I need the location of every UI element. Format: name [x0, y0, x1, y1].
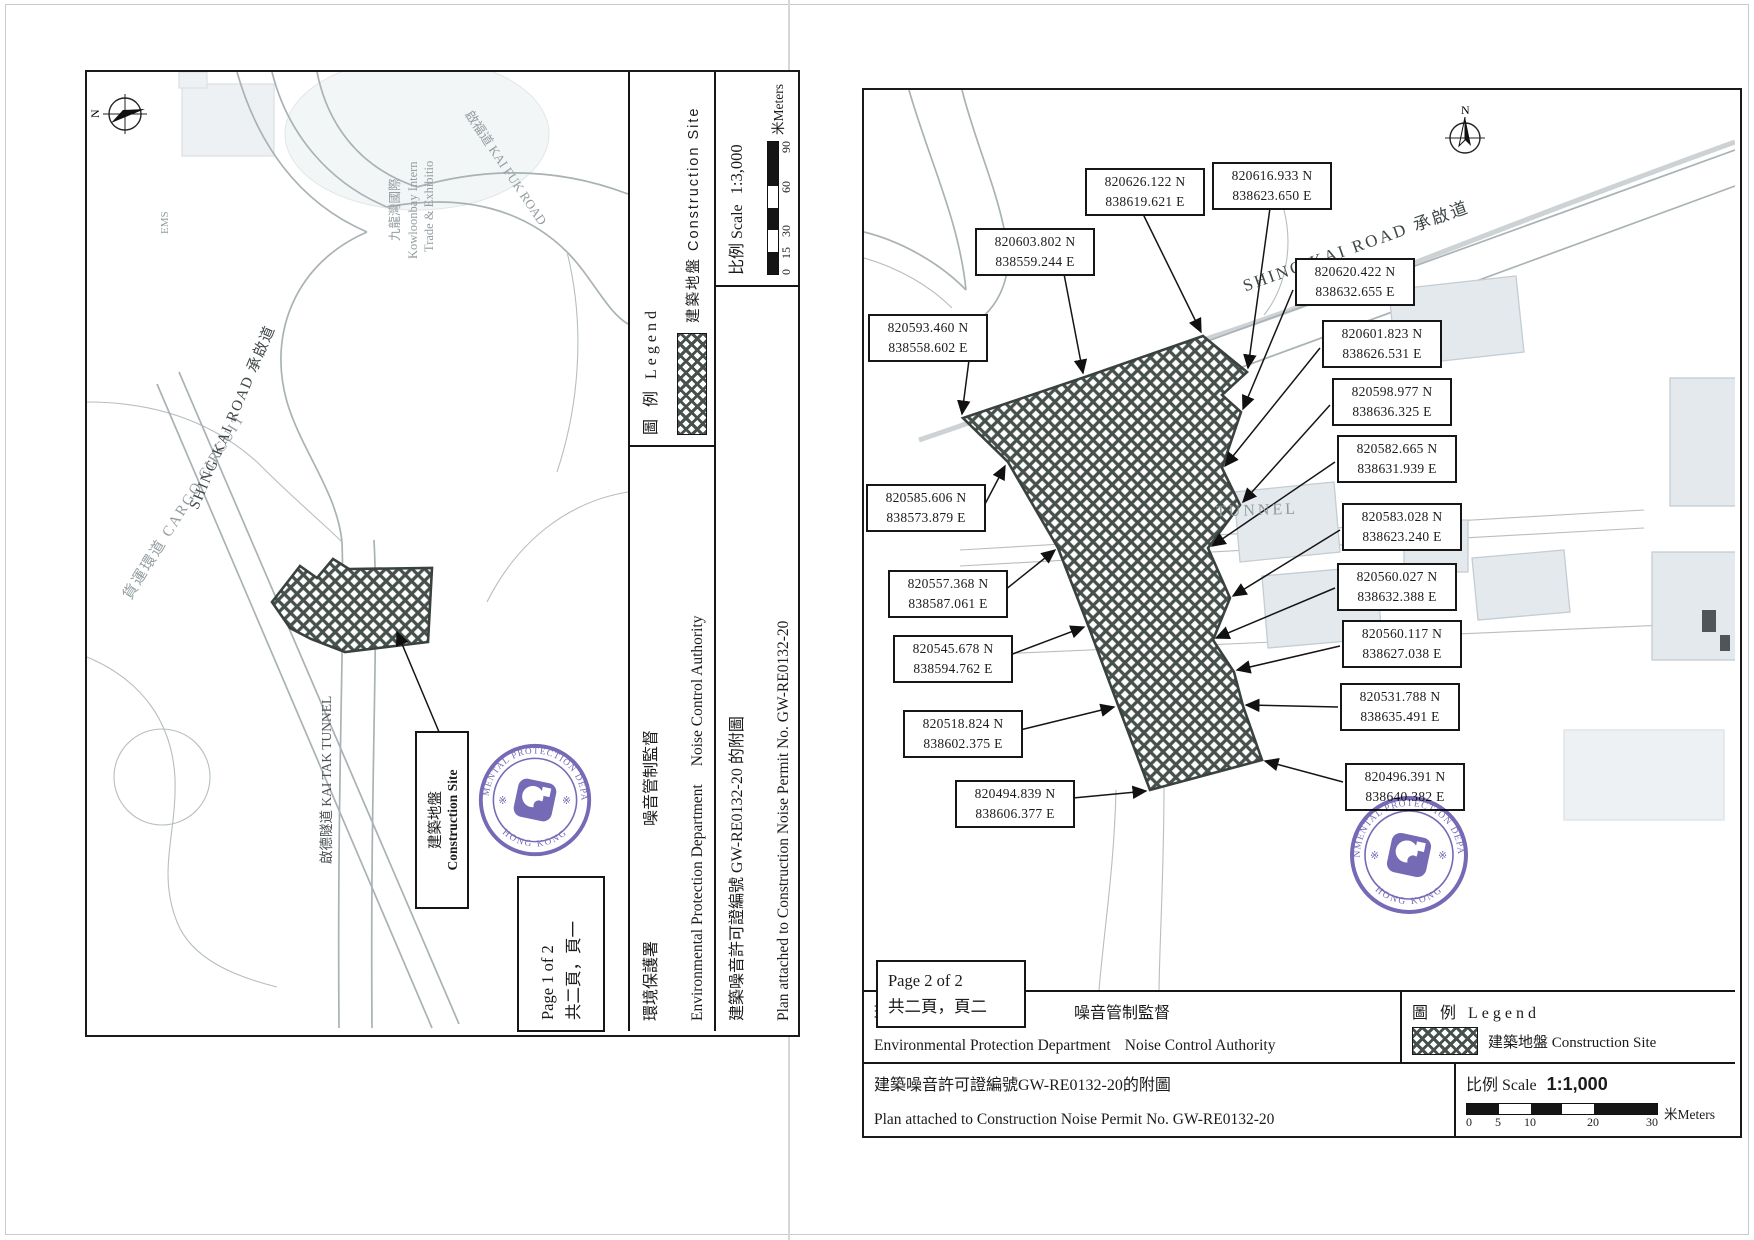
permit-plan-page-1: N EMS 貨運環道 CARGO CIRCUIT 啟福道 KAI FUK ROA… — [85, 70, 800, 1037]
coordinate-label: 820616.933 N838623.650 E — [1212, 162, 1332, 210]
scale-value: 1:3,000 — [727, 144, 747, 194]
stamp-star-left: ※ — [498, 796, 507, 807]
coordinate-label: 820531.788 N838635.491 E — [1340, 683, 1460, 731]
dept-zh: 環境保護署 — [643, 941, 660, 1021]
meters-label: 米Meters — [767, 84, 787, 135]
legend-hatch-swatch — [1412, 1027, 1478, 1055]
scale-bar-ticks: 0 5 10 20 30 — [1466, 1115, 1656, 1129]
page-number-zh: 共二頁，頁一 — [561, 878, 587, 1020]
page-number-zh: 共二頁，頁二 — [888, 994, 1024, 1020]
permit-line-en: Plan attached to Construction Noise Perm… — [874, 1111, 1444, 1129]
coordinate-label: 820545.678 N838594.762 E — [893, 635, 1013, 683]
permit-cell: 建築噪音許可證編號 GW-RE0132-20 的附圖 Plan attached… — [716, 287, 800, 1031]
legend-cell: 圖 例 Legend 建築地盤 Construction Site — [630, 72, 714, 447]
building — [179, 72, 207, 88]
legend-title: 圖 例 Legend — [637, 82, 661, 435]
kowloonbay-label-en1: Kowloonbay Intern — [406, 161, 421, 259]
coordinate-label: 820560.027 N838632.388 E — [1337, 563, 1457, 611]
coordinate-label: 820585.606 N838573.879 E — [866, 484, 986, 532]
permit-line-zh: 建築噪音許可證編號GW-RE0132-20的附圖 — [874, 1071, 1444, 1095]
scanned-permit-plans: N EMS 貨運環道 CARGO CIRCUIT 啟福道 KAI FUK ROA… — [0, 0, 1754, 1240]
scale-cell: 比例 Scale1:3,000 0 15 — [716, 72, 800, 287]
stamp-star-right: ※ — [1438, 850, 1447, 862]
permit-plan-page-2: N SHING KAI ROAD 承啟道 TUNNEL TS 820603.80… — [862, 88, 1742, 1138]
construction-site-arrow — [397, 632, 442, 739]
legend-title: 圖 例 Legend — [1412, 999, 1725, 1023]
construction-site-callout: 建築地盤 Construction Site — [415, 735, 465, 909]
epd-stamp: ENVIRONMENTAL PROTECTION DEPARTMENT HONG… — [1346, 792, 1472, 918]
permit-cell: 建築噪音許可證編號GW-RE0132-20的附圖 Plan attached t… — [864, 1064, 1454, 1136]
kowloonbay-label-zh: 九龍灣國際 — [384, 178, 403, 241]
scale-bar — [767, 141, 779, 275]
coordinate-label: 820582.665 N838631.939 E — [1337, 435, 1457, 483]
scale-bar — [1466, 1103, 1658, 1115]
authority-zh: 噪音管制監督 — [643, 730, 660, 826]
epd-stamp: ENVIRONMENTAL PROTECTION DEPARTMENT HONG… — [475, 740, 595, 860]
coordinate-label: 820560.117 N838627.038 E — [1342, 620, 1462, 668]
coordinate-label: 820626.122 N838619.621 E — [1085, 168, 1205, 216]
scale-label: 比例 Scale — [723, 204, 747, 275]
coordinate-label: 820557.368 N838587.061 E — [888, 570, 1008, 618]
ems-label: EMS — [159, 211, 171, 234]
svg-text:HONG KONG: HONG KONG — [1373, 885, 1445, 907]
stamp-star-right: ※ — [562, 796, 571, 807]
dept-en: Environmental Protection Department — [874, 1037, 1111, 1054]
coordinate-label: 820518.824 N838602.375 E — [903, 710, 1023, 758]
page1-title-block: 環境保護署噪音管制監督 Environmental Protection Dep… — [628, 72, 798, 1031]
scale-cell: 比例 Scale1:1,000 0 5 10 — [1454, 1064, 1735, 1136]
page-number-en: Page 2 of 2 — [888, 968, 1024, 994]
scale-bar-ticks: 0 15 30 60 90 — [779, 143, 793, 275]
building — [182, 84, 274, 156]
north-letter: N — [1461, 103, 1470, 117]
scale-value: 1:1,000 — [1547, 1074, 1608, 1095]
page-number-en: Page 1 of 2 — [535, 878, 561, 1020]
authority-en: Noise Control Authority — [689, 616, 706, 767]
page2-map: N — [864, 90, 1735, 990]
construction-site-polygon — [272, 559, 432, 652]
legend-cell: 圖 例 Legend 建築地盤 Construction Site — [1400, 992, 1735, 1062]
scale-label: 比例 Scale — [1466, 1071, 1537, 1095]
north-letter: N — [88, 109, 102, 118]
coordinate-label: 820598.977 N838636.325 E — [1332, 378, 1452, 426]
coordinate-label: 820601.823 N838626.531 E — [1322, 320, 1442, 368]
svg-text:HONG KONG: HONG KONG — [501, 827, 569, 849]
page-number-box: Page 1 of 2 共二頁，頁一 — [517, 890, 601, 1032]
legend-hatch-swatch — [677, 333, 707, 435]
kai-tak-tunnel-label: 啟德隧道 KAI TAK TUNNEL — [315, 696, 335, 864]
authority-en: Noise Control Authority — [1125, 1037, 1276, 1054]
callout-label-zh: 建築地盤 — [424, 791, 445, 849]
coordinate-label: 820583.028 N838623.240 E — [1342, 503, 1462, 551]
coordinate-label: 820620.422 N838632.655 E — [1295, 258, 1415, 306]
north-compass: N — [1445, 103, 1485, 153]
callout-label-en: Construction Site — [445, 770, 461, 871]
meters-label: 米Meters — [1664, 1103, 1715, 1123]
stamp-star-left: ※ — [1370, 850, 1379, 862]
coordinate-label: 820494.839 N838606.377 E — [955, 780, 1075, 828]
epd-logo — [1385, 831, 1432, 878]
page-number-box: Page 2 of 2 共二頁，頁二 — [876, 960, 1026, 1028]
kowloonbay-label-en2: Trade & Exhibitio — [422, 161, 437, 252]
authority-zh: 噪音管制監督 — [1074, 1005, 1170, 1022]
north-compass: N — [88, 94, 147, 134]
permit-line-en: Plan attached to Construction Noise Perm… — [775, 297, 793, 1021]
coordinate-label: 820603.802 N838559.244 E — [975, 228, 1095, 276]
coordinate-label: 820593.460 N838558.602 E — [868, 314, 988, 362]
legend-item-label: 建築地盤 Construction Site — [682, 107, 703, 323]
epd-logo — [512, 777, 558, 823]
permit-line-zh: 建築噪音許可證編號 GW-RE0132-20 的附圖 — [723, 297, 747, 1021]
tunnel-label: TUNNEL — [1216, 501, 1299, 522]
department-cell: 環境保護署噪音管制監督 Environmental Protection Dep… — [630, 447, 714, 1031]
buildings — [1234, 276, 1735, 820]
dept-en: Environmental Protection Department — [689, 784, 706, 1021]
legend-item-label: 建築地盤 Construction Site — [1488, 1031, 1656, 1052]
